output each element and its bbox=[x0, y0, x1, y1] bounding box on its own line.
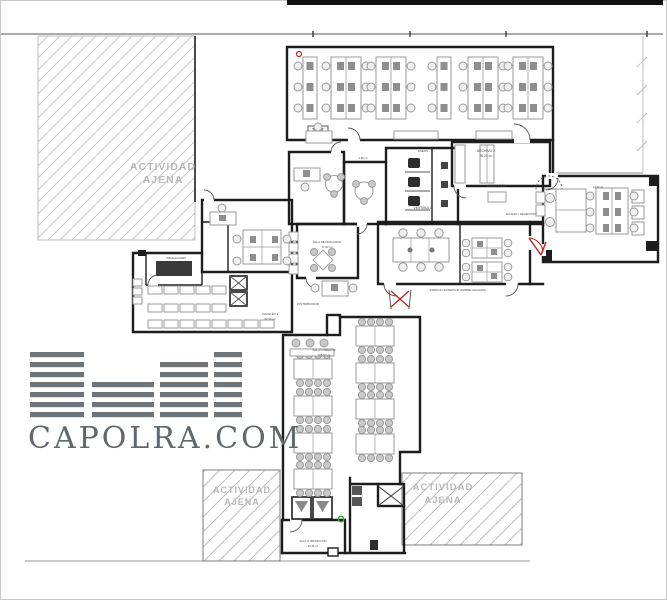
watermark-bar bbox=[214, 352, 242, 357]
room-area-clima: 20,45 m² bbox=[308, 544, 318, 548]
external-area-top-left: ACTIVIDAD AJENA bbox=[38, 36, 196, 240]
desk-bench bbox=[504, 57, 552, 119]
room-label-descanso: SALA DE DESCANSO bbox=[313, 240, 342, 244]
room-label-archivo: ARCHIVO 2 bbox=[477, 149, 495, 153]
room-label-aseos: ASEOS bbox=[418, 149, 428, 153]
desk-bench bbox=[459, 57, 507, 119]
watermark-bar bbox=[160, 402, 208, 407]
external-area-label: ACTIVIDAD bbox=[130, 161, 196, 173]
room-area-meeting: 4,35 m² bbox=[358, 156, 368, 160]
watermark-bar bbox=[30, 372, 84, 377]
watermark-bar bbox=[160, 362, 208, 367]
watermark-bar bbox=[160, 382, 208, 387]
room-area-despacho: 24,60 m² bbox=[593, 185, 603, 189]
watermark-bar bbox=[214, 372, 242, 377]
watermark-bar bbox=[92, 382, 154, 387]
room-label-recepcion: RECEPCIÓN bbox=[488, 183, 508, 188]
room-area-comedor: 108,50 m² bbox=[317, 353, 330, 357]
room-label-vestibulo: VESTÍBULO bbox=[413, 206, 432, 210]
room-label-acceso: ACCESO / RECEPCIÓN bbox=[506, 211, 537, 216]
watermark-bar bbox=[92, 402, 154, 407]
external-area-label: AJENA bbox=[424, 495, 461, 506]
external-area-label: ACTIVIDAD bbox=[413, 482, 474, 493]
electrical-cabinet bbox=[156, 261, 192, 276]
room-area-almacen: 32,30 m² bbox=[264, 317, 275, 321]
watermark-bar bbox=[30, 382, 84, 387]
external-area-label: AJENA bbox=[143, 174, 184, 186]
watermark-bar bbox=[214, 362, 242, 367]
meeting-table bbox=[393, 229, 449, 271]
desk-bench bbox=[294, 57, 317, 119]
watermark-bar bbox=[160, 412, 208, 417]
top-wall-strip bbox=[287, 0, 663, 5]
watermark-bar bbox=[214, 382, 242, 387]
floor-plan-image: ACTIVIDAD AJENA ACTIVIDAD AJENA ACTIVIDA… bbox=[0, 0, 667, 600]
watermark-bar bbox=[92, 392, 154, 397]
room-label-instalaciones: INSTALACIONES bbox=[166, 257, 186, 260]
room-area-archivo: 35,20 m² bbox=[480, 154, 493, 158]
external-area-bottom-right: ACTIVIDAD AJENA bbox=[402, 473, 522, 545]
label-exterior: ESPACIO EXTERIOR (SOBRE VACIADO) bbox=[430, 288, 487, 292]
watermark-bar bbox=[214, 412, 242, 417]
watermark-bar bbox=[160, 392, 208, 397]
watermark-text: CAPOLRA.COM bbox=[28, 421, 302, 456]
watermark-bar bbox=[30, 402, 84, 407]
desk-bench bbox=[322, 57, 370, 119]
watermark-bar bbox=[30, 412, 84, 417]
watermark-bar bbox=[160, 372, 208, 377]
room-label-distribuidor: DISTRIBUIDOR bbox=[297, 302, 320, 306]
external-area-bottom-center: ACTIVIDAD AJENA bbox=[203, 470, 280, 561]
watermark-bar bbox=[214, 392, 242, 397]
watermark-bar bbox=[214, 402, 242, 407]
watermark-bar bbox=[30, 362, 84, 367]
watermark-bar bbox=[92, 412, 154, 417]
external-area-label: AJENA bbox=[224, 497, 260, 507]
room-label-almacen: ALMACÉN 1 bbox=[262, 311, 279, 316]
room-label-mantenimiento: MANTENIM. bbox=[542, 187, 557, 191]
room-label-comedor: SALA COMEDOR bbox=[312, 348, 335, 352]
desk-bench bbox=[428, 57, 451, 119]
desk-bench bbox=[367, 57, 415, 119]
room-area-descanso: 17,30 m² bbox=[321, 245, 332, 249]
desk-bench bbox=[546, 188, 639, 234]
watermark-bar bbox=[30, 352, 84, 357]
watermark-bar bbox=[30, 392, 84, 397]
external-area-label: ACTIVIDAD bbox=[213, 485, 271, 495]
